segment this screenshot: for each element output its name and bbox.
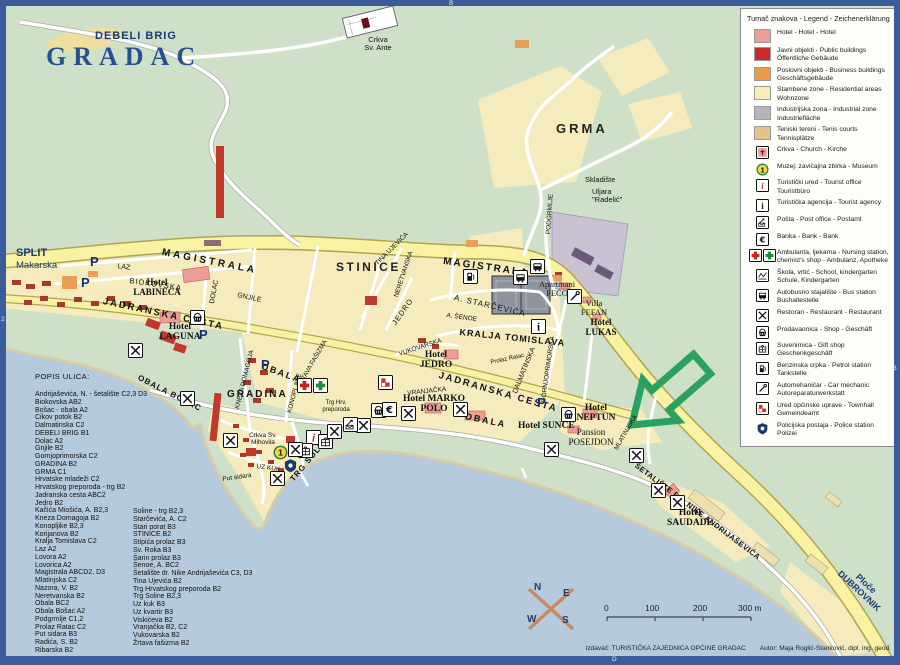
- map-label: Hotel LABINECA: [133, 278, 181, 298]
- legend-item: Industrijska zona - Industrial zone Indu…: [747, 106, 891, 122]
- street-index-entry: Šetalište dr. Nike Andrijaševića C3, D3: [133, 570, 252, 578]
- street-index-entry: Lovora A2: [35, 554, 147, 562]
- street-index-entry: Neretvanska B2: [35, 593, 147, 601]
- legend-label: Ured općinske uprave - Townhall Gemeinde…: [777, 402, 874, 418]
- legend-label: Automehaničar - Car mechanic Autoreparat…: [777, 382, 869, 398]
- legend-title: Tumač znakova - Legend - Zeichenerklärun…: [747, 14, 891, 23]
- scale-tick-label: 300 m: [738, 603, 762, 613]
- street-index-entry: Trg Soline B2,3: [133, 593, 252, 601]
- legend-label: Policijska postaja - Police station Poli…: [777, 422, 874, 438]
- map-label: Uljara "Radelić": [592, 188, 622, 205]
- map-icon-ambulance: [297, 378, 328, 393]
- legend-item: Pošta - Post office - Postamt: [747, 216, 891, 229]
- street-index-entry: Mlatinjska C2: [35, 577, 147, 585]
- bank-legend-icon: €: [747, 233, 777, 246]
- map-label: SPLIT: [16, 247, 47, 259]
- page-title: GRADAC: [46, 42, 202, 72]
- street-index-entry: Trg Hrvatskog preporoda B2: [133, 586, 252, 594]
- legend-label: Autobusno stajalište - Bus station Busha…: [777, 289, 876, 305]
- street-index-entry: Sv. Roka B3: [133, 547, 252, 555]
- map-label: Hotel SUNCE: [518, 421, 575, 431]
- legend-label: Stambene zone - Residential areas Wohnzo…: [777, 86, 881, 102]
- legend-item: Policijska postaja - Police station Poli…: [747, 422, 891, 438]
- legend-item: Restoran - Restaurant - Restaurant: [747, 309, 891, 322]
- map-icon-tourist-agency: i: [531, 319, 546, 334]
- tennis-legend-icon: [747, 126, 777, 140]
- svg-text:€: €: [385, 405, 393, 416]
- map-icon-shop: [190, 310, 205, 325]
- petrol-legend-icon: [747, 362, 777, 375]
- street-index-entry: Bošac - obala A2: [35, 407, 147, 415]
- museum-legend-icon: 1: [747, 163, 777, 176]
- school-legend-icon: [747, 269, 777, 282]
- map-icon-parking: P: [261, 359, 270, 371]
- street-index-entry: Kneza Domagoja B2: [35, 515, 147, 523]
- legend-item: Autobusno stajalište - Bus station Busha…: [747, 289, 891, 305]
- map-label: Makarska: [16, 261, 57, 271]
- street-index-entry: Put sidara B3: [35, 631, 147, 639]
- map-icon-restaurant: [223, 433, 238, 448]
- map-icon-petrol: [463, 269, 478, 284]
- legend-item: Hotel - Hotel - Hotel: [747, 29, 891, 43]
- compass-east-label: E: [563, 588, 570, 599]
- public-buildings-legend-icon: [747, 47, 777, 61]
- publisher-credit: Izdavač: TURISTIČKA ZAJEDNICA OPĆINE GRA…: [585, 645, 745, 652]
- svg-text:€: €: [758, 234, 765, 244]
- author-credit: Autor: Maja Roglić-Stanković, dipl. ing.…: [760, 645, 891, 652]
- street-col-1: Andrijaševića, N. - šetalište C2,3 D3Bio…: [35, 391, 147, 655]
- street-index-entry: Radića, S. B2: [35, 639, 147, 647]
- street-index-entry: Viskićeva B2: [133, 617, 252, 625]
- map-label: STINICE: [336, 261, 401, 274]
- street-index-entry: Hrvatske mladeži C2: [35, 476, 147, 484]
- street-index-entry: Prolaz Ratac C2: [35, 624, 147, 632]
- gradac-town-map: GRADAC Tumač znakova - Legend - Zeichene…: [0, 0, 900, 665]
- legend-item: Crkva - Church - Kirche: [747, 146, 891, 159]
- legend-label: Restoran - Restaurant - Restaurant: [777, 309, 881, 317]
- gift-legend-icon: [747, 342, 777, 355]
- map-credits: Izdavač: TURISTIČKA ZAJEDNICA OPĆINE GRA…: [585, 645, 891, 652]
- street-index-entry: GRADINA B2: [35, 461, 147, 469]
- map-icon-restaurant: [128, 343, 143, 358]
- map-label: Villa FEFAN: [581, 299, 607, 318]
- street-index-entry: Dolac A2: [35, 438, 147, 446]
- street-index-entry: Kralja Tomislava C2: [35, 538, 147, 546]
- map-icon-restaurant: [544, 442, 559, 457]
- legend-label: Ambulanta, ljekarna - Nursing station, c…: [777, 249, 889, 265]
- legend-item: Javni objekti - Public buildings Öffentl…: [747, 47, 891, 63]
- street-index-entry: Andrijaševića, N. - šetalište C2,3 D3: [35, 391, 147, 399]
- svg-text:i: i: [537, 322, 540, 333]
- compass-west-label: W: [527, 614, 536, 625]
- map-icon-police: [283, 458, 298, 473]
- tourist-office-legend-icon: i: [747, 179, 777, 192]
- map-icon-restaurant: [651, 483, 666, 498]
- map-icon-mechanic: [567, 289, 582, 304]
- mechanic-legend-icon: [747, 382, 777, 395]
- ambulance-legend-icon: [747, 249, 777, 262]
- street-index-entry: Magistrala ABCD2, D3: [35, 569, 147, 577]
- street-index-entry: Jadranska cesta ABC2: [35, 492, 147, 500]
- map-label: LAZ: [117, 263, 131, 272]
- legend-label: Hotel - Hotel - Hotel: [777, 29, 836, 37]
- street-index-entry: Gornjoprimorska C2: [35, 453, 147, 461]
- townhall-legend-icon: [747, 402, 777, 415]
- map-icon-restaurant: [180, 391, 195, 406]
- street-index-entry: Kačića Miošića, A. B2,3: [35, 507, 147, 515]
- street-index-entry: STINICE B2: [133, 531, 252, 539]
- street-index-title: POPIS ULICA:: [35, 372, 90, 381]
- map-label: Trg Hrv. preporoda: [322, 400, 349, 413]
- map-icon-parking: P: [199, 329, 208, 341]
- church-legend-icon: [747, 146, 777, 159]
- street-index-entry: Vukovarska B2: [133, 632, 252, 640]
- legend-item: Teniski tereni - Tenis courts Tennisplät…: [747, 126, 891, 142]
- residential-legend-icon: [747, 86, 777, 100]
- street-index-entry: Konopljike B2,3: [35, 523, 147, 531]
- map-icon-bus: [530, 259, 545, 274]
- shop-legend-icon: [747, 326, 777, 339]
- street-index-entry: Cikov potok B2: [35, 414, 147, 422]
- map-label: GRMA: [556, 122, 608, 136]
- street-index-entry: Uz kvartir B3: [133, 609, 252, 617]
- map-icon-restaurant: [327, 424, 342, 439]
- map-icon-restaurant: [270, 471, 285, 486]
- legend-label: Suvenirnica - Gift shop Geschenkgeschäft: [777, 342, 845, 358]
- street-index-entry: Biokovska AB2: [35, 399, 147, 407]
- map-label: Pansion POSEJDON: [568, 428, 613, 448]
- legend-panel: Tumač znakova - Legend - Zeichenerklärun…: [740, 8, 896, 447]
- legend-item: iTuristički ured - Tourist office Touris…: [747, 179, 891, 195]
- street-index-entry: Stipića prolaz B3: [133, 539, 252, 547]
- street-index-entry: Gnjile B2: [35, 445, 147, 453]
- map-label: DEBELI BRIG: [95, 30, 177, 42]
- legend-item: 1Muzej: zavičajna zbirka - Museum: [747, 163, 891, 176]
- scale-tick-label: 200: [693, 603, 707, 613]
- post-legend-icon: [747, 216, 777, 229]
- street-index-entry: Soline - trg B2,3: [133, 508, 252, 516]
- legend-label: Prodavaonica - Shop - Geschäft: [777, 326, 872, 334]
- map-icon-restaurant: [670, 495, 685, 510]
- map-icon-townhall: [378, 375, 393, 390]
- business-buildings-legend-icon: [747, 67, 777, 81]
- street-index-entry: Tina Ujevića B2: [133, 578, 252, 586]
- street-index-entry: Uz kuk B3: [133, 601, 252, 609]
- tourist-agency-legend-icon: i: [747, 199, 777, 212]
- map-label: Skladište: [585, 176, 615, 184]
- street-index-entry: Nazora, V. B2: [35, 585, 147, 593]
- map-icon-parking: P: [81, 277, 90, 289]
- compass-south-label: S: [562, 615, 569, 626]
- street-index-entry: GRMA C1: [35, 469, 147, 477]
- street-index-entry: Hrvatskog preporoda - trg B2: [35, 484, 147, 492]
- legend-item: Ambulanta, ljekarna - Nursing station, c…: [747, 249, 891, 265]
- map-icon-restaurant: [453, 402, 468, 417]
- street-index-entry: Lovorica A2: [35, 562, 147, 570]
- grid-letter-right: 3: [893, 366, 897, 373]
- map-icon-restaurant: [629, 448, 644, 463]
- map-icon-parking: P: [537, 397, 546, 409]
- restaurant-legend-icon: [747, 309, 777, 322]
- legend-label: Benzinska crpka - Petrol station Tankste…: [777, 362, 871, 378]
- map-icon-restaurant: [356, 418, 371, 433]
- compass-north-label: N: [534, 582, 541, 593]
- street-index-entry: Ribarska B2: [35, 647, 147, 655]
- legend-item: Prodavaonica - Shop - Geschäft: [747, 326, 891, 339]
- svg-text:i: i: [761, 202, 764, 211]
- legend-item: Suvenirnica - Gift shop Geschenkgeschäft: [747, 342, 891, 358]
- police-legend-icon: [747, 422, 777, 435]
- legend-label: Muzej: zavičajna zbirka - Museum: [777, 163, 878, 171]
- svg-text:i: i: [761, 183, 764, 192]
- legend-label: Pošta - Post office - Postamt: [777, 216, 862, 224]
- svg-text:1: 1: [760, 165, 764, 174]
- legend-label: Turistička agencija - Tourist agency: [777, 199, 881, 207]
- legend-item: iTuristička agencija - Tourist agency: [747, 199, 891, 212]
- street-index-entry: Dalmatinska C2: [35, 422, 147, 430]
- svg-text:1: 1: [278, 448, 283, 458]
- street-index-entry: Starčevića, A. C2: [133, 516, 252, 524]
- grid-letter-bottom: D: [612, 657, 617, 664]
- legend-label: Crkva - Church - Kirche: [777, 146, 847, 154]
- street-index-entry: Šenoe, A. BC2: [133, 562, 252, 570]
- scale-tick-label: 100: [645, 603, 659, 613]
- scale-tick-label: 0: [604, 603, 609, 613]
- legend-item: €Banka - Bank - Bank: [747, 233, 891, 246]
- street-index-entry: Podgrmlje C1,2: [35, 616, 147, 624]
- legend-label: Teniski tereni - Tenis courts Tennisplät…: [777, 126, 858, 142]
- map-label: Hotel LAGUNA: [159, 322, 200, 343]
- legend-items: Hotel - Hotel - HotelJavni objekti - Pub…: [747, 29, 891, 438]
- industrial-legend-icon: [747, 106, 777, 120]
- bus-legend-icon: [747, 289, 777, 302]
- street-col-2: Soline - trg B2,3Starčevića, A. C2Stari …: [133, 508, 252, 648]
- legend-label: Škola, vrtić - School, kindergarten Schu…: [777, 269, 877, 285]
- map-label: Hotel JEDRO: [420, 350, 452, 371]
- grid-letter-top: B: [449, 1, 453, 8]
- legend-item: Benzinska crpka - Petrol station Tankste…: [747, 362, 891, 378]
- street-index-entry: Obala Bošac A2: [35, 608, 147, 616]
- street-index-entry: Stari porat B3: [133, 524, 252, 532]
- map-icon-restaurant: [288, 442, 303, 457]
- street-index-entry: Žrtava fašizma B2: [133, 640, 252, 648]
- map-icon-restaurant: [401, 406, 416, 421]
- street-index-entry: Jedro B2: [35, 500, 147, 508]
- map-label: Crkva Sv. Ante: [364, 36, 391, 53]
- legend-label: Poslovni objekti - Business buildings Ge…: [777, 67, 885, 83]
- grid-letter-left: 2: [1, 317, 5, 324]
- legend-label: Turistički ured - Tourist office Tourist…: [777, 179, 862, 195]
- legend-label: Banka - Bank - Bank: [777, 233, 838, 241]
- legend-item: Poslovni objekti - Business buildings Ge…: [747, 67, 891, 83]
- legend-item: Škola, vrtić - School, kindergarten Schu…: [747, 269, 891, 285]
- map-label: Hotel NEPTUN: [576, 403, 615, 424]
- street-index-entry: Vranjačka B2, C2: [133, 624, 252, 632]
- legend-item: Automehaničar - Car mechanic Autoreparat…: [747, 382, 891, 398]
- legend-item: Ured općinske uprave - Townhall Gemeinde…: [747, 402, 891, 418]
- street-index-entry: Korijanova B2: [35, 531, 147, 539]
- legend-item: Stambene zone - Residential areas Wohnzo…: [747, 86, 891, 102]
- legend-label: Industrijska zona - Industrial zone Indu…: [777, 106, 877, 122]
- map-icon-bus: [513, 270, 528, 285]
- map-icon-post: [343, 417, 358, 432]
- map-label: Hotel SAUDADE: [667, 508, 713, 529]
- legend-label: Javni objekti - Public buildings Öffentl…: [777, 47, 866, 63]
- map-icon-bank: €: [382, 402, 397, 417]
- map-icon-shop: [561, 407, 576, 422]
- hotel-legend-icon: [747, 29, 777, 43]
- street-index-entry: Obala BC2: [35, 600, 147, 608]
- map-label: Hotel LUKAS: [585, 318, 616, 338]
- street-index-entry: Laz A2: [35, 546, 147, 554]
- street-index-panel: POPIS ULICA: Andrijaševića, N. - šetališ…: [35, 372, 90, 390]
- map-icon-parking: P: [90, 256, 99, 268]
- street-index-entry: DEBELI BRIG B1: [35, 430, 147, 438]
